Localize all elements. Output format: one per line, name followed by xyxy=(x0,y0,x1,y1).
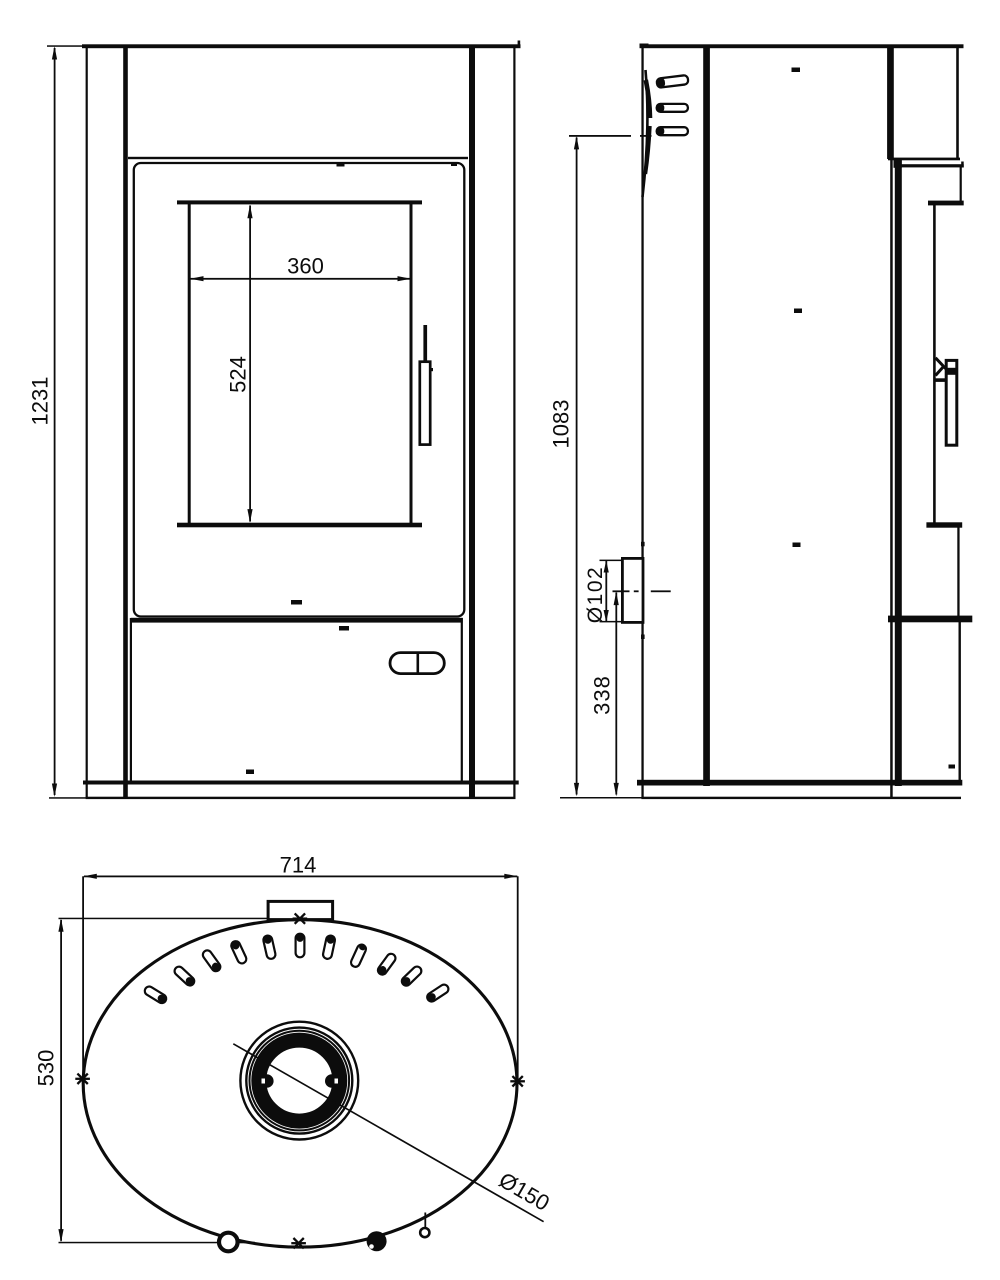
svg-text:524: 524 xyxy=(226,356,251,393)
svg-text:1083: 1083 xyxy=(549,400,574,449)
svg-text:Ø102: Ø102 xyxy=(584,566,607,623)
svg-text:530: 530 xyxy=(34,1050,59,1087)
svg-text:1231: 1231 xyxy=(28,377,53,426)
svg-text:338: 338 xyxy=(590,675,615,715)
svg-text:360: 360 xyxy=(287,254,324,279)
svg-text:714: 714 xyxy=(280,853,317,878)
